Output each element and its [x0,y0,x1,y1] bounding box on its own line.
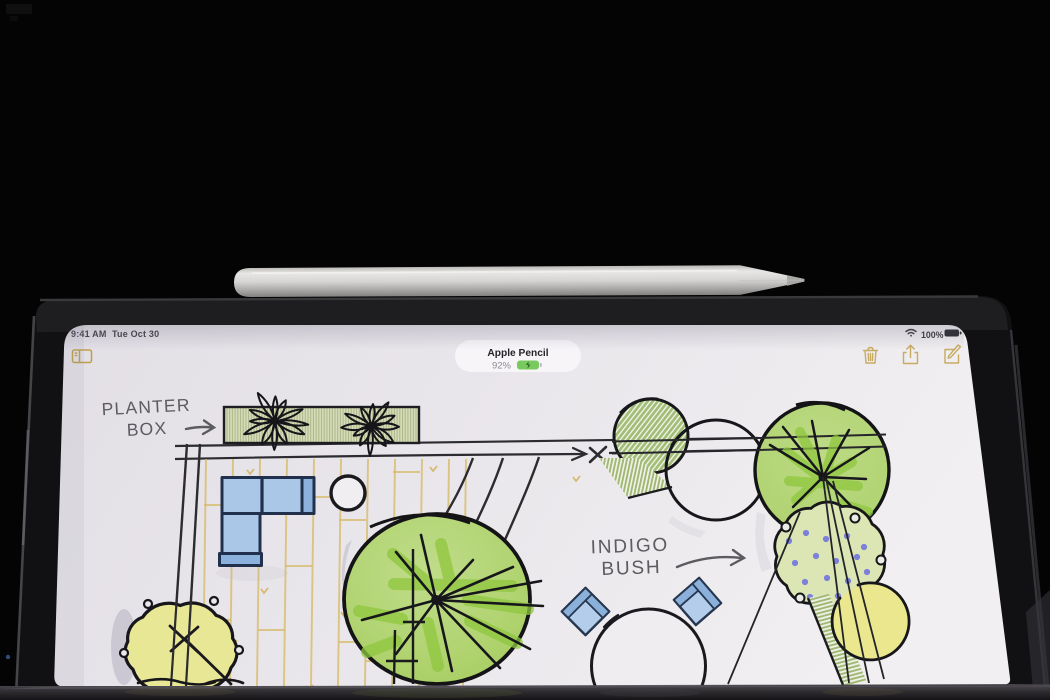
svg-text:BOX: BOX [126,418,168,440]
svg-text:BUSH: BUSH [601,557,662,580]
svg-text:92%: 92% [492,361,512,372]
svg-text:INDIGO: INDIGO [590,535,669,559]
